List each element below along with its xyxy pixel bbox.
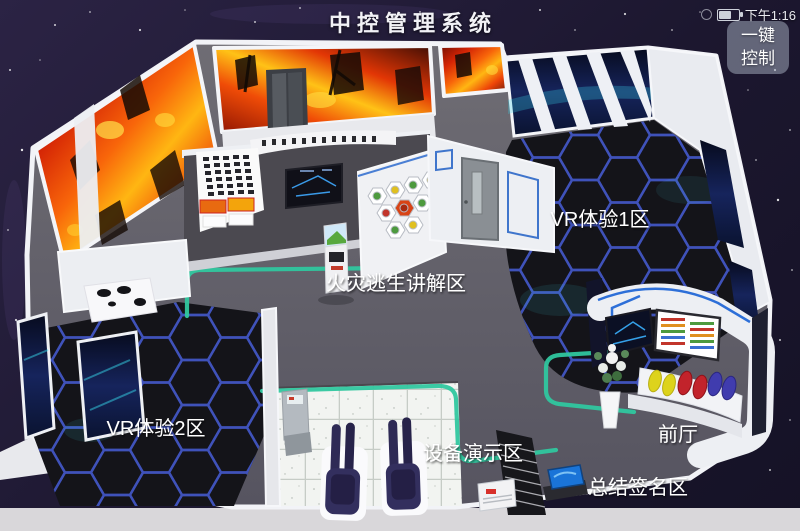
- control-system-screen: VR体验1区 火灾逃生讲解区 VR体验2区 设备演示区 前厅 总结签名区 中控管…: [0, 0, 800, 531]
- zone-label-fire-escape: 火灾逃生讲解区: [326, 272, 466, 295]
- zone-label-lobby: 前厅: [658, 423, 698, 446]
- vr-zone-2-floor: [32, 302, 268, 506]
- zone-label-vr1: VR体验1区: [551, 208, 650, 231]
- door: [462, 158, 498, 240]
- one-key-control-line1: 一键: [741, 25, 775, 47]
- print-machine: [478, 479, 516, 511]
- wall-screen: [286, 164, 342, 208]
- facility-map: VR体验1区 火灾逃生讲解区 VR体验2区 设备演示区 前厅 总结签名区: [0, 0, 800, 531]
- one-key-control-line2: 控制: [741, 48, 775, 70]
- page-title: 中控管理系统: [0, 6, 800, 38]
- zone-label-equipment-demo: 设备演示区: [423, 442, 523, 465]
- facility-model: VR体验1区 火灾逃生讲解区 VR体验2区 设备演示区 前厅 总结签名区: [18, 42, 770, 521]
- zone-label-vr2: VR体验2区: [107, 417, 206, 440]
- signal-icon: [701, 9, 712, 20]
- battery-icon: [717, 9, 740, 21]
- zone-label-signature: 总结签名区: [588, 476, 688, 499]
- one-key-control-button[interactable]: 一键 控制: [727, 21, 789, 74]
